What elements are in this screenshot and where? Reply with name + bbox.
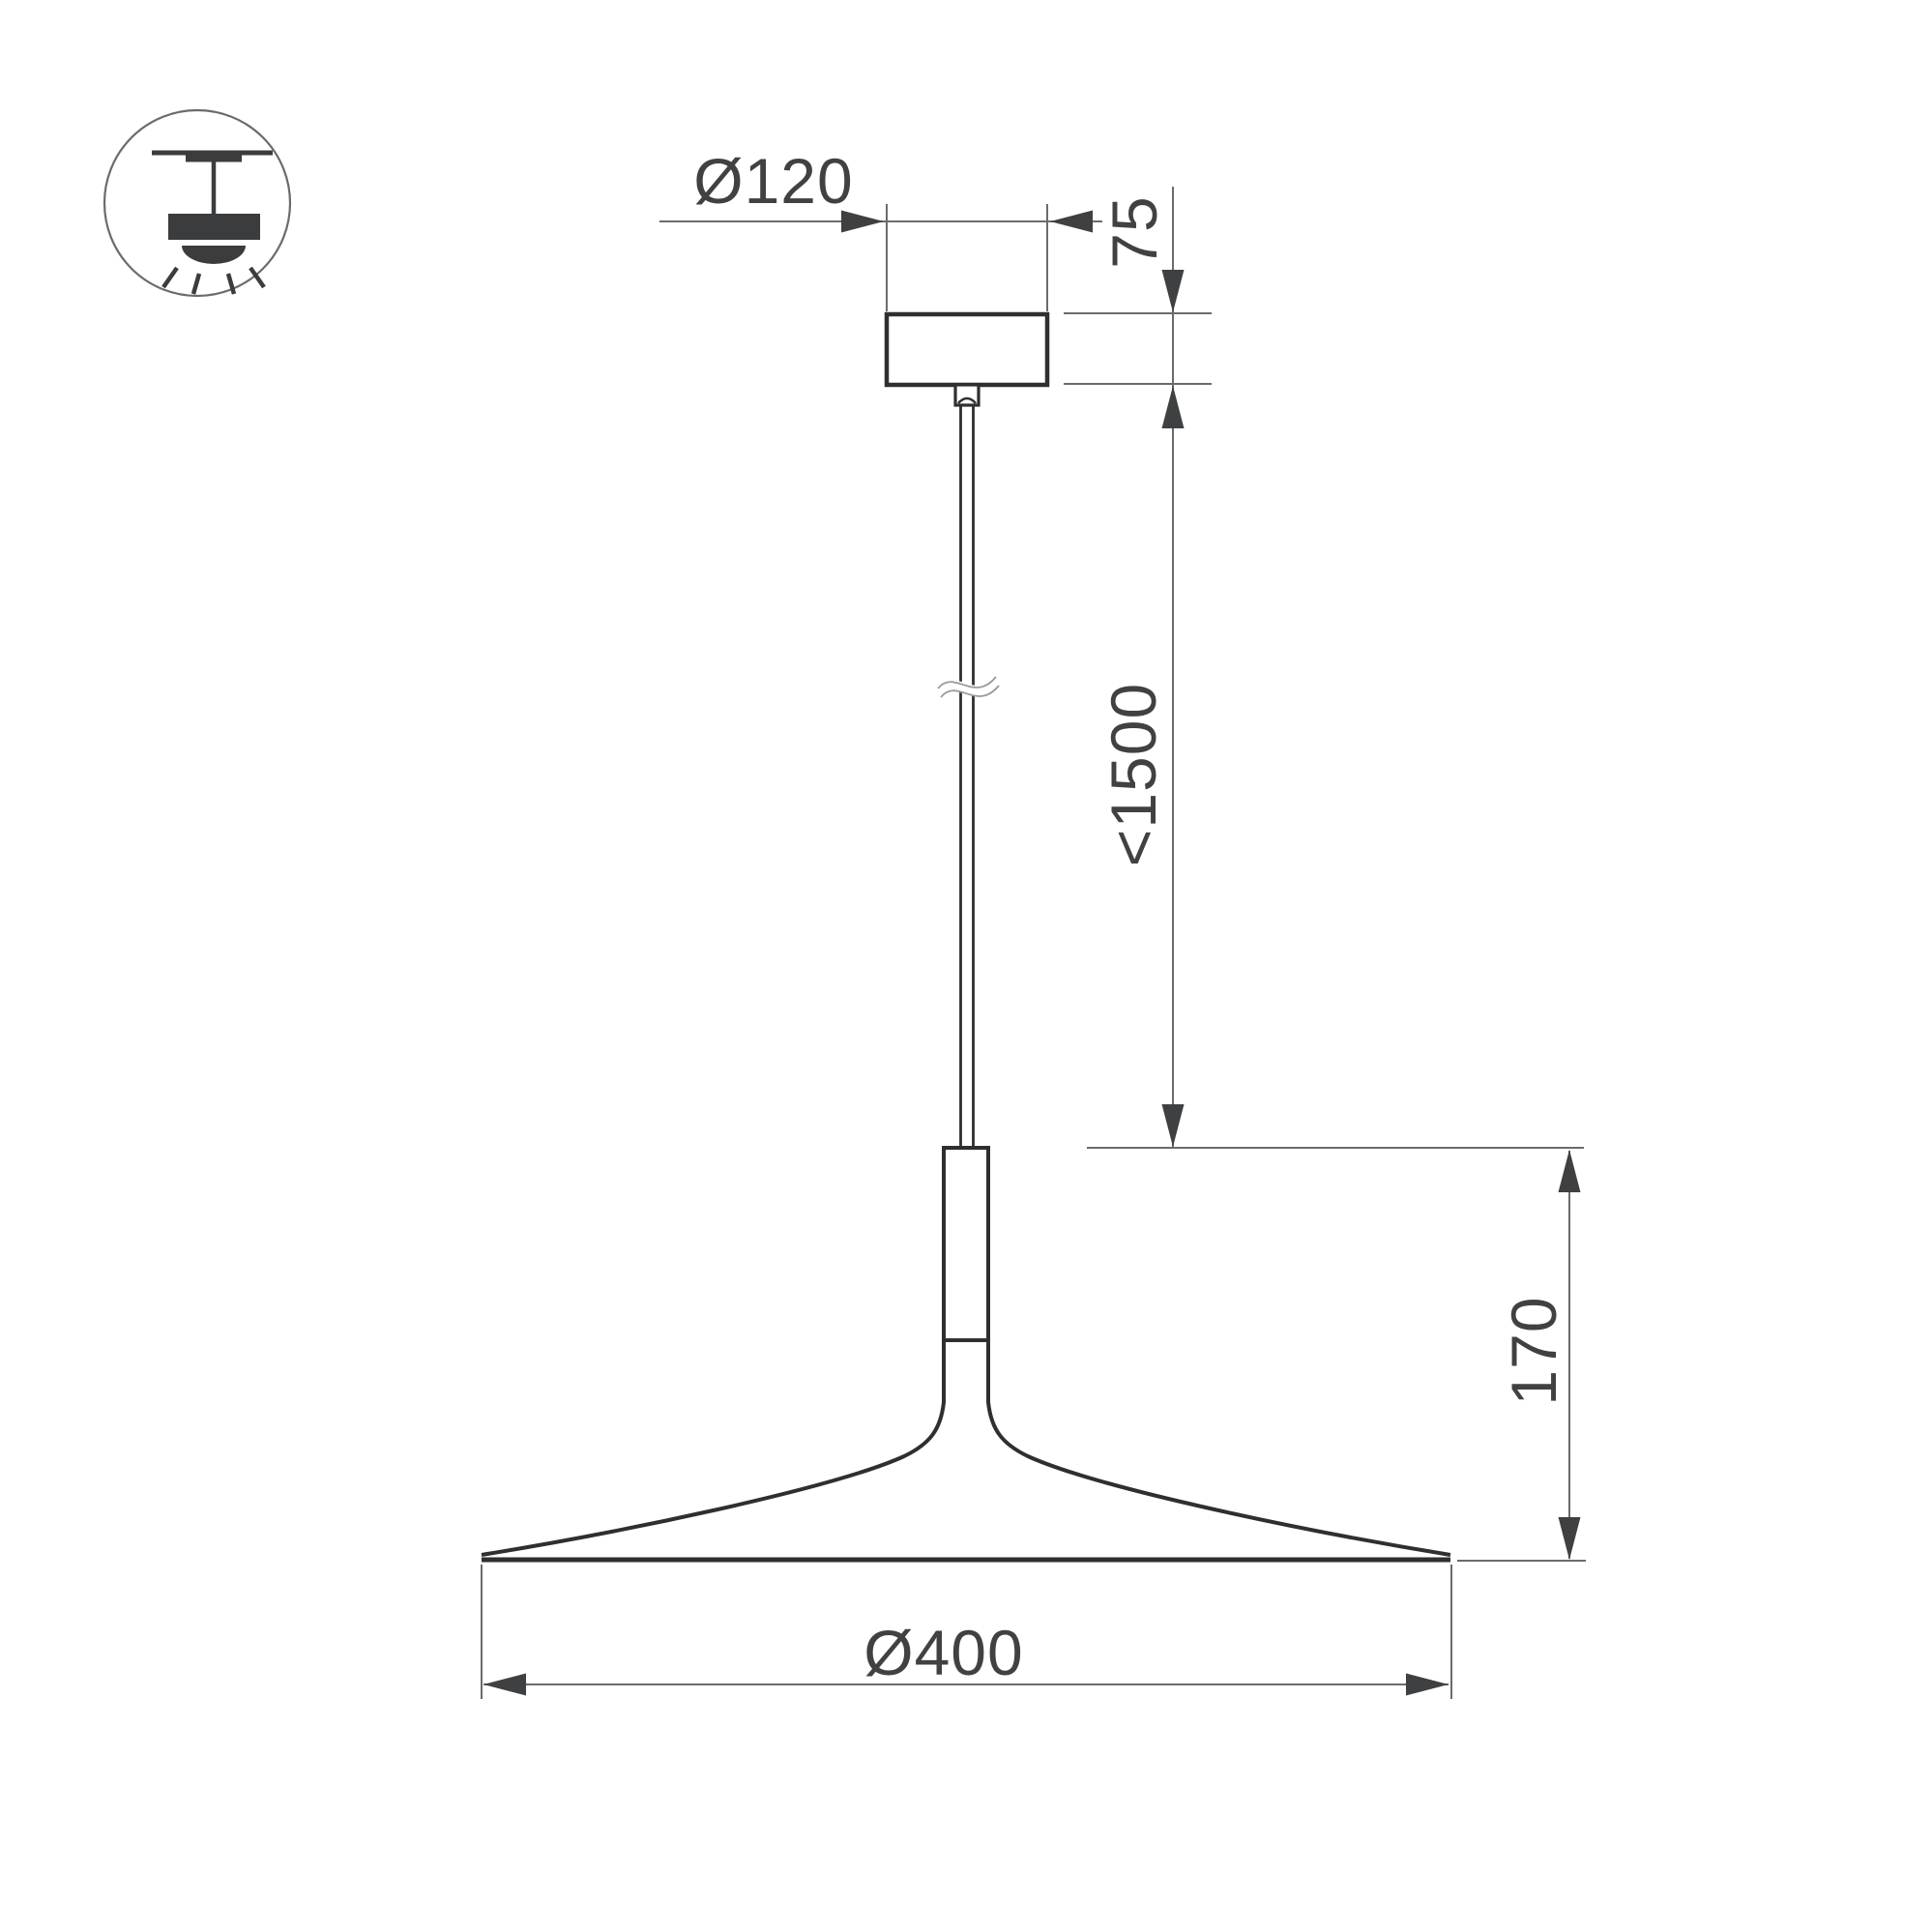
suspension-length-label: <1500 xyxy=(1098,683,1169,866)
dimension-lamp-height: 170 xyxy=(1457,1150,1586,1561)
canopy-outline xyxy=(887,314,1047,385)
arrow-right-icon xyxy=(1406,1674,1449,1696)
shade-left-outline xyxy=(482,1148,944,1555)
suspension-wire xyxy=(938,405,999,1147)
arrow-left-icon xyxy=(1050,211,1093,233)
dimension-suspension-length: <1500 xyxy=(1087,683,1584,1148)
arrow-up-icon xyxy=(1162,386,1185,428)
arrow-left-icon xyxy=(483,1674,526,1696)
shade-diameter-label: Ø400 xyxy=(864,1617,1023,1688)
shade-right-outline xyxy=(988,1148,1450,1555)
lamp-shade xyxy=(482,1148,1450,1560)
dimension-shade-diameter: Ø400 xyxy=(482,1565,1451,1699)
ceiling-canopy xyxy=(887,314,1047,405)
icon-mount-plate xyxy=(186,156,242,162)
pendant-lamp-dimension-drawing: Ø120 75 <1500 170 Ø400 xyxy=(0,0,1932,1932)
dimension-canopy-diameter: Ø120 xyxy=(659,145,1102,311)
dimension-canopy-height: 75 xyxy=(1064,187,1212,1147)
arrow-down-icon xyxy=(1162,270,1185,312)
drawing-canvas: Ø120 75 <1500 170 Ø400 xyxy=(0,0,1932,1932)
icon-circle xyxy=(104,110,290,296)
lamp-height-label: 170 xyxy=(1498,1296,1569,1405)
arrow-up-icon xyxy=(1559,1150,1581,1192)
icon-diffuser-dome xyxy=(182,246,246,264)
pendant-ceiling-light-icon xyxy=(104,110,290,296)
canopy-height-label: 75 xyxy=(1098,195,1170,268)
arrow-down-icon xyxy=(1162,1104,1185,1147)
canopy-diameter-label: Ø120 xyxy=(693,145,853,217)
icon-lamp-body xyxy=(168,214,260,240)
wire-break-symbol xyxy=(938,677,999,697)
arrow-down-icon xyxy=(1559,1517,1581,1560)
